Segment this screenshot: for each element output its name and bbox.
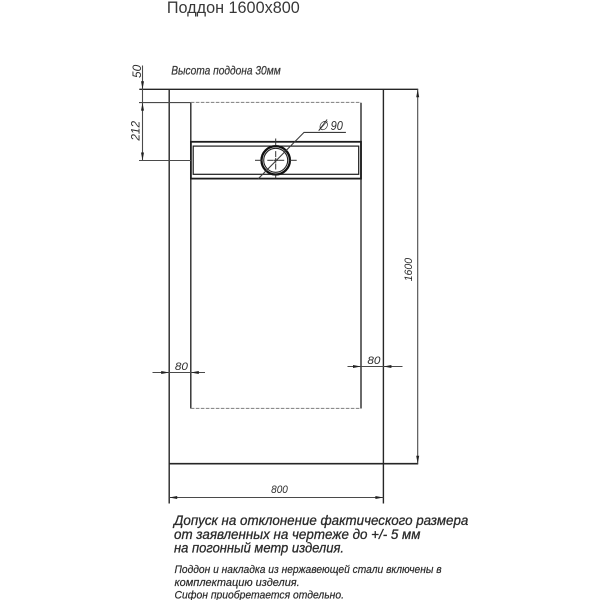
svg-text:50: 50 <box>130 64 144 78</box>
svg-text:комплектацию изделия.: комплектацию изделия. <box>175 577 300 589</box>
svg-text:800: 800 <box>271 484 288 496</box>
svg-text:80: 80 <box>367 355 381 367</box>
svg-text:Высота поддона 30мм: Высота поддона 30мм <box>171 63 281 77</box>
svg-text:Поддон и накладка из нержавеющ: Поддон и накладка из нержавеющей стали в… <box>175 564 442 576</box>
svg-text:80: 80 <box>175 361 189 373</box>
svg-text:на погонный метр изделия.: на погонный метр изделия. <box>174 539 344 555</box>
svg-text:212: 212 <box>128 121 142 142</box>
svg-text:Сифон приобретается отдельно.: Сифон приобретается отдельно. <box>175 589 345 600</box>
svg-text:1600: 1600 <box>403 257 415 281</box>
svg-text:∅ 90: ∅ 90 <box>318 119 343 133</box>
svg-text:Поддон 1600х800: Поддон 1600х800 <box>167 0 300 17</box>
